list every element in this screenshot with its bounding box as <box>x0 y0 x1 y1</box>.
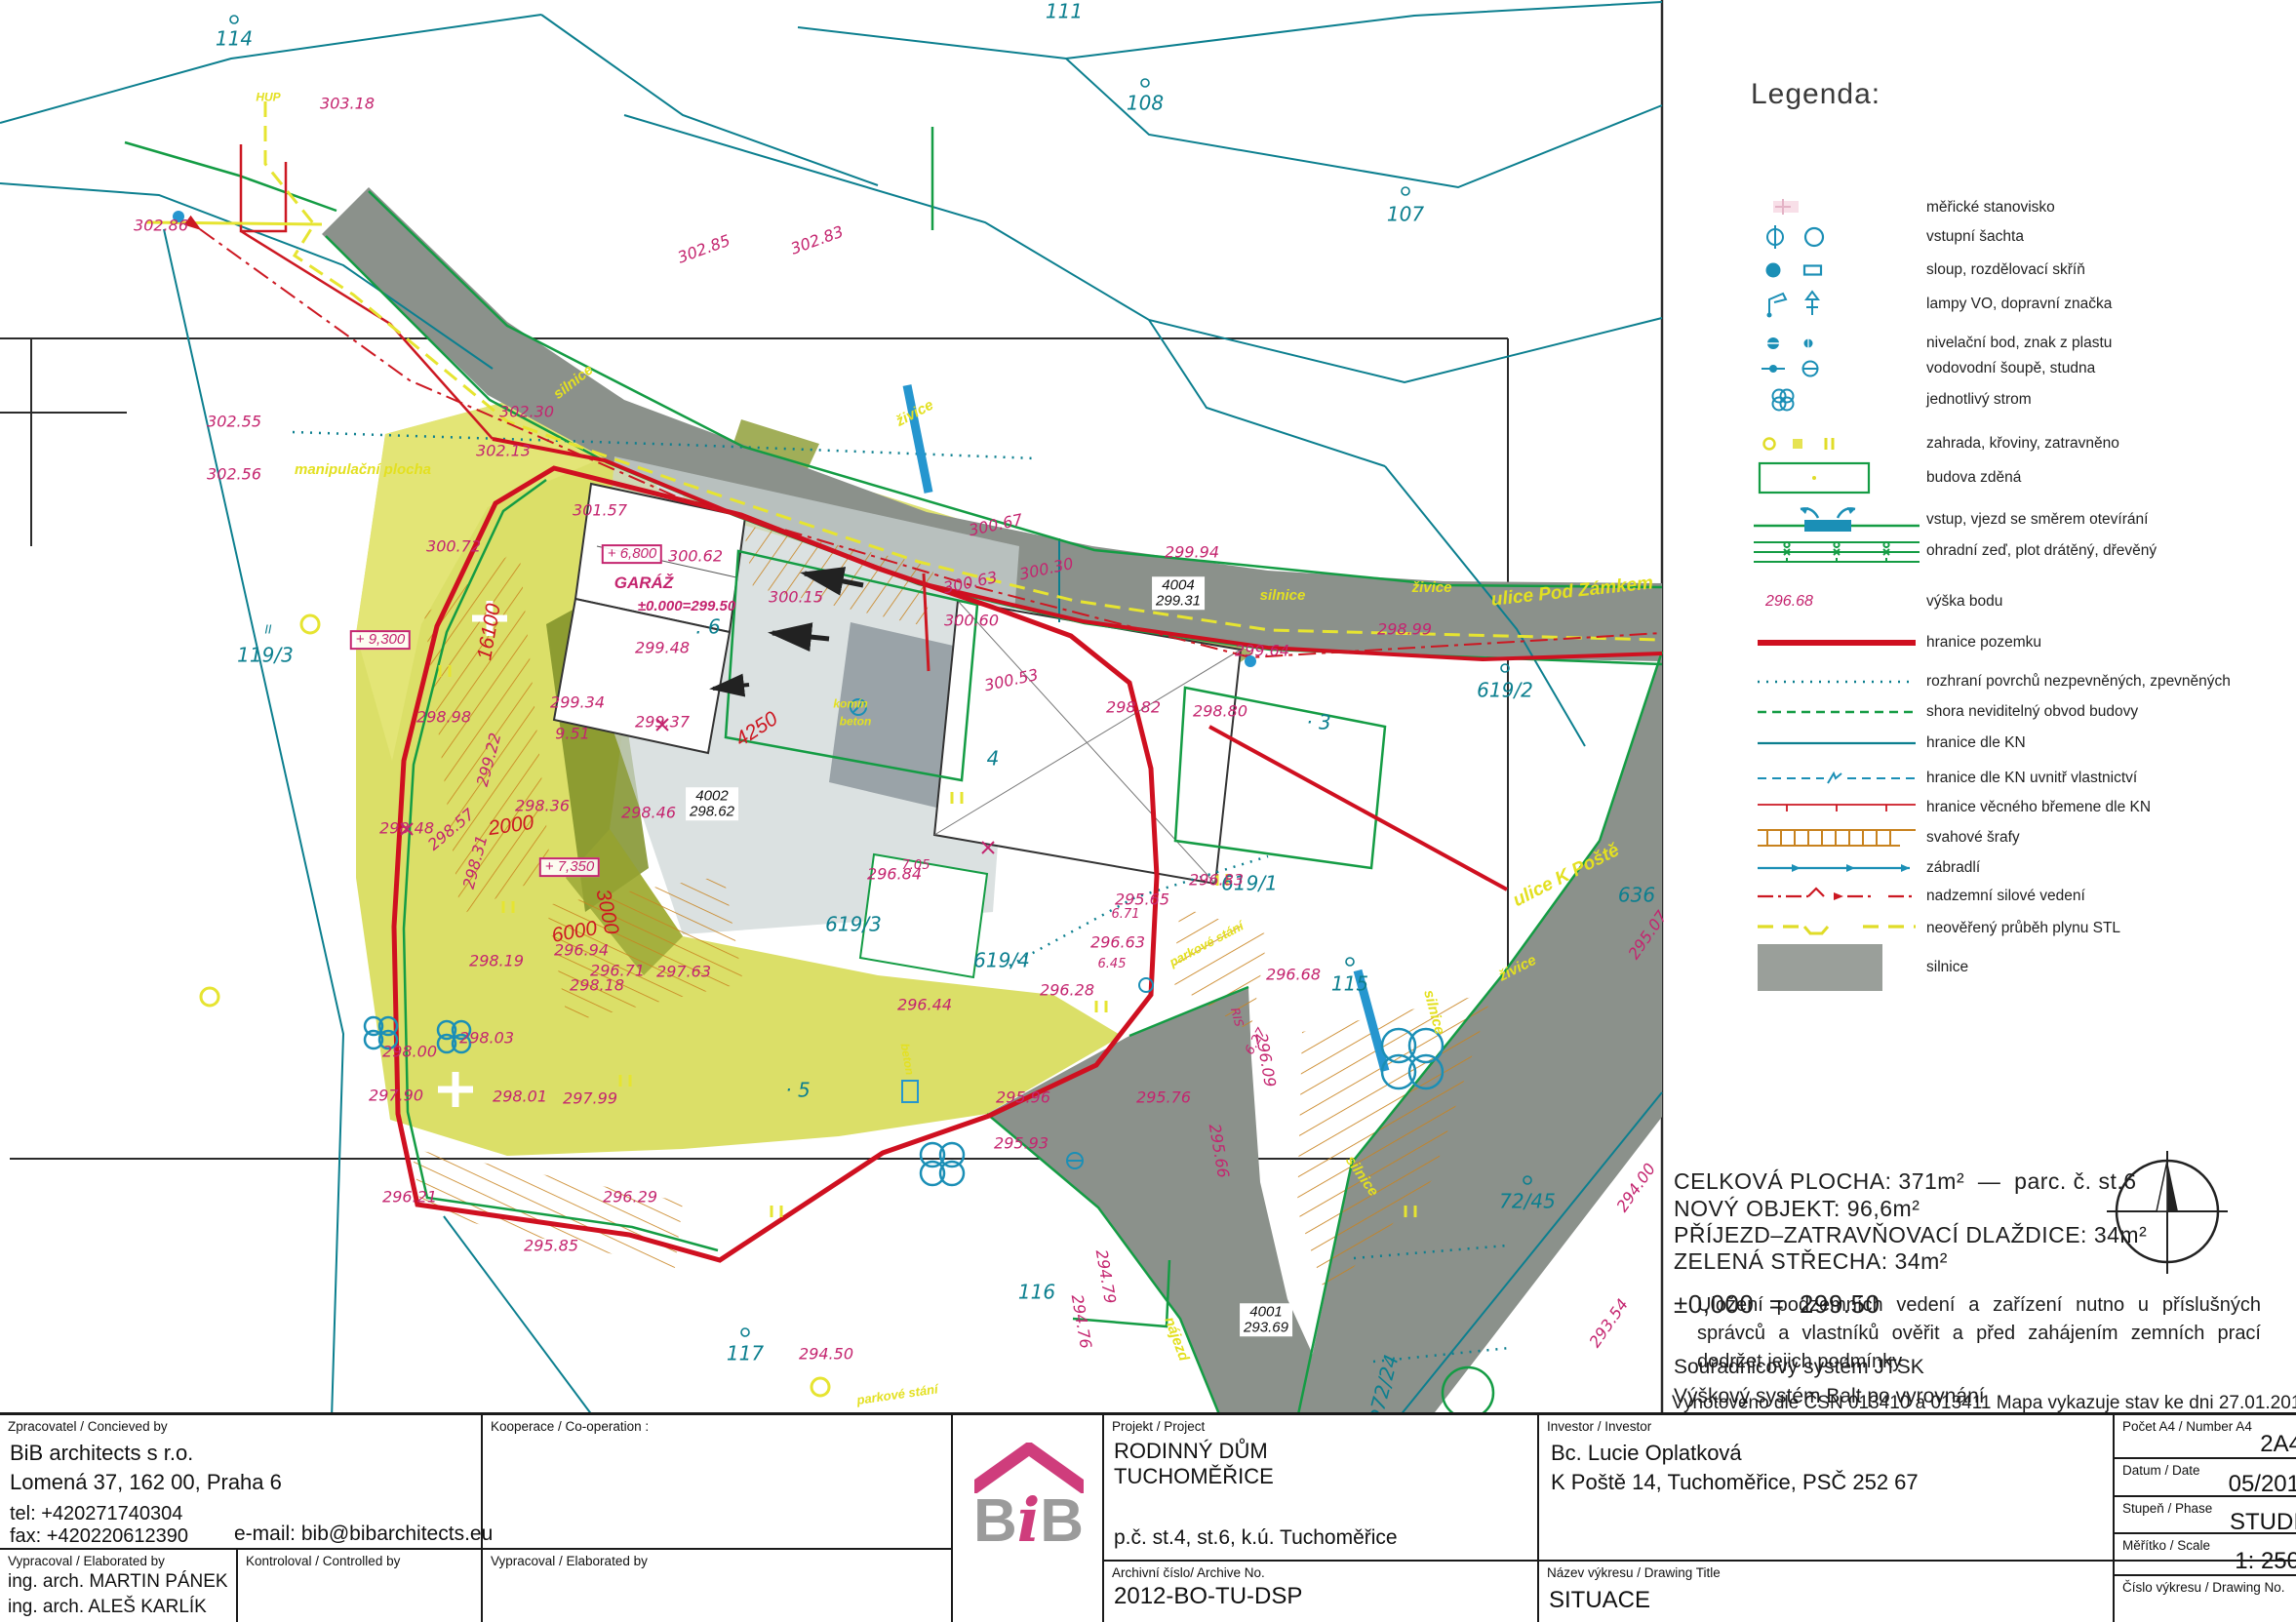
legend-item-label: sloup, rozdělovací skříň <box>1926 261 2085 279</box>
legend-item-pozemek: hranice pozemku <box>1668 628 2292 657</box>
archiv-label: Archivní číslo/ Archive No. <box>1112 1565 1265 1580</box>
legend-item-srafy: svahové šrafy <box>1668 823 2292 852</box>
legend-item-soupe: vodovodní šoupě, studna <box>1668 354 2292 383</box>
rozhrani-legend-icon <box>1754 667 1920 696</box>
nazev-label: Název výkresu / Drawing Title <box>1547 1565 1721 1580</box>
projekt-parcel: p.č. st.4, st.6, k.ú. Tuchoměřice <box>1114 1526 1398 1550</box>
kooperace-label: Kooperace / Co-operation : <box>491 1419 649 1434</box>
legend-item-label: zábradlí <box>1926 859 1980 877</box>
legend-item-kn_uvnitr: hranice dle KN uvnitř vlastnictví <box>1668 764 2292 793</box>
sachta-legend-icon <box>1754 222 1920 252</box>
cell-kooperace: Kooperace / Co-operation : <box>481 1415 951 1550</box>
legend-item-label: ohradní zeď, plot drátěný, dřevěný <box>1926 542 2157 560</box>
titleblock-divider <box>1102 1560 2296 1562</box>
legend-item-label: hranice věcného břemene dle KN <box>1926 799 2151 816</box>
cislo-label: Číslo výkresu / Drawing No. <box>2122 1580 2285 1595</box>
legend-item-label: hranice dle KN uvnitř vlastnictví <box>1926 770 2137 787</box>
stanovisko-legend-icon <box>1754 193 1920 222</box>
meritko-value: 1: 250 <box>2235 1548 2296 1575</box>
legend-item-label: silnice <box>1926 959 1968 976</box>
ohradni-legend-icon <box>1754 536 1920 566</box>
legend-item-vecne: hranice věcného břemene dle KN <box>1668 793 2292 822</box>
cell-cislo: Číslo výkresu / Drawing No. <box>2113 1574 2296 1622</box>
legend-item-label: hranice dle KN <box>1926 734 2026 752</box>
legend-item-label: nivelační bod, znak z plastu <box>1926 335 2112 352</box>
author-1: ing. arch. MARTIN PÁNEK <box>8 1571 228 1593</box>
shora-legend-icon <box>1754 697 1920 727</box>
legend-item-kn: hranice dle KN <box>1668 729 2292 758</box>
nadzemni-legend-icon <box>1754 882 1920 911</box>
vstup-legend-icon <box>1754 504 1920 535</box>
cell-logo: BiB <box>951 1415 1102 1622</box>
lampy-legend-icon <box>1754 290 1920 319</box>
srafy-legend-icon <box>1754 823 1920 852</box>
legend-item-zabradli: zábradlí <box>1668 853 2292 883</box>
company-name: BiB architects s r.o. <box>10 1441 193 1466</box>
soupe-legend-icon <box>1754 354 1920 383</box>
investor-name: Bc. Lucie Oplatková <box>1551 1441 1742 1466</box>
legend-item-label: budova zděná <box>1926 469 2021 487</box>
author-2: ing. arch. ALEŠ KARLÍK <box>8 1597 207 1618</box>
pocet-value: 2A4 <box>2260 1431 2296 1458</box>
cell-archiv: Archivní číslo/ Archive No. 2012-BO-TU-D… <box>1102 1562 1537 1622</box>
plyn-legend-icon <box>1754 914 1920 943</box>
vypracoval-label: Vypracoval / Elaborated by <box>8 1554 165 1568</box>
legend-item-ohradni: ohradní zeď, plot drátěný, dřevěný <box>1668 536 2292 566</box>
pozemek-legend-icon <box>1754 628 1920 657</box>
titleblock-divider <box>0 1548 951 1550</box>
legend-item-plyn: neověřený průběh plynu STL <box>1668 914 2292 943</box>
legend-item-zahrada: zahrada, křoviny, zatravněno <box>1668 429 2292 458</box>
vypracoval2-label: Vypracoval / Elaborated by <box>491 1554 648 1568</box>
legend-item-silnice: silnice <box>1668 941 2292 994</box>
cell-stupen: Stupeň / Phase STUDI <box>2113 1495 2296 1532</box>
meritko-label: Měřítko / Scale <box>2122 1538 2210 1553</box>
cell-pocet: Počet A4 / Number A4 2A4 <box>2113 1415 2296 1457</box>
csn-footer-line: Vyhotoveno dle ČSN 013410 a 013411 Mapa … <box>1672 1393 2296 1414</box>
investor-label: Investor / Investor <box>1547 1419 1651 1434</box>
company-tel: tel: +420271740304 <box>10 1503 182 1525</box>
cell-vypracoval-2: Vypracoval / Elaborated by <box>481 1550 951 1622</box>
legend-item-label: vodovodní šoupě, studna <box>1926 360 2095 377</box>
legend-item-lampy: lampy VO, dopravní značka <box>1668 290 2292 319</box>
legend-item-strom: jednotlivý strom <box>1668 385 2292 415</box>
cell-projekt: Projekt / Project RODINNÝ DŮM TUCHOMĚŘIC… <box>1102 1415 1537 1562</box>
legend-item-label: shora neviditelný obvod budovy <box>1926 703 2138 721</box>
legend-item-vstup: vstup, vjezd se směrem otevírání <box>1668 504 2292 535</box>
cell-vypracoval: Vypracoval / Elaborated by ing. arch. MA… <box>0 1550 236 1622</box>
kn-legend-icon <box>1754 729 1920 758</box>
drawing-title: SITUACE <box>1549 1587 1650 1614</box>
cell-kontroloval: Kontroloval / Controlled by <box>236 1550 481 1622</box>
legend-panel: Legenda: měřické stanoviskovstupní šacht… <box>1668 0 2296 1157</box>
company-fax: fax: +420220612390 <box>10 1525 188 1548</box>
zabradli-legend-icon <box>1754 853 1920 883</box>
legend-item-label: rozhraní povrchů nezpevněných, zpevněnýc… <box>1926 673 2231 691</box>
zpracovatel-label: Zpracovatel / Concieved by <box>8 1419 168 1434</box>
bib-logo: BiB <box>953 1437 1104 1549</box>
legend-item-label: měřické stanovisko <box>1926 199 2055 217</box>
legend-item-nadzemni: nadzemní silové vedení <box>1668 882 2292 911</box>
site-plan-page: 114111108107119/3II619/2619/1619/3619/4·… <box>0 0 2296 1622</box>
legend-item-label: hranice pozemku <box>1926 634 2041 652</box>
strom-legend-icon <box>1754 385 1920 415</box>
projekt-name-2: TUCHOMĚŘICE <box>1114 1464 1274 1489</box>
bib-logo-word: BiB <box>953 1493 1104 1549</box>
vecne-legend-icon <box>1754 793 1920 822</box>
legend-item-label: vstupní šachta <box>1926 228 2024 246</box>
projekt-label: Projekt / Project <box>1112 1419 1205 1434</box>
legend-item-stanovisko: měřické stanovisko <box>1668 193 2292 222</box>
north-compass-icon <box>2099 1147 2236 1284</box>
cell-zpracovatel: Zpracovatel / Concieved by BiB architect… <box>0 1415 481 1550</box>
legend-item-label: neověřený průběh plynu STL <box>1926 920 2120 937</box>
legend-item-label: vstup, vjezd se směrem otevírání <box>1926 511 2148 529</box>
company-address: Lomená 37, 162 00, Praha 6 <box>10 1470 282 1495</box>
legend-title: Legenda: <box>1751 78 1880 111</box>
cell-investor: Investor / Investor Bc. Lucie Oplatková … <box>1537 1415 2113 1562</box>
legend-item-shora: shora neviditelný obvod budovy <box>1668 697 2292 727</box>
pocet-label: Počet A4 / Number A4 <box>2122 1419 2252 1434</box>
kn_uvnitr-legend-icon <box>1754 764 1920 793</box>
datum-value: 05/201 <box>2229 1471 2296 1498</box>
legend-symbol-text: 296.68 <box>1765 593 1813 611</box>
silnice-legend-icon <box>1754 941 1920 994</box>
driveway-line: PŘÍJEZD–ZATRAVŇOVACÍ DLAŽDICE: 34m² <box>1674 1222 2147 1248</box>
sloup-legend-icon <box>1754 256 1920 285</box>
stupen-label: Stupeň / Phase <box>2122 1501 2212 1516</box>
legend-item-sloup: sloup, rozdělovací skříň <box>1668 256 2292 285</box>
legend-item-label: zahrada, křoviny, zatravněno <box>1926 435 2119 453</box>
green-roof-line: ZELENÁ STŘECHA: 34m² <box>1674 1248 1948 1275</box>
legend-item-label: lampy VO, dopravní značka <box>1926 296 2112 313</box>
legend-item-label: jednotlivý strom <box>1926 391 2032 409</box>
legend-item-budova: budova zděná <box>1668 460 2292 495</box>
projekt-name-1: RODINNÝ DŮM <box>1114 1439 1268 1464</box>
legend-item-vyska: 296.68výška bodu <box>1668 587 2292 616</box>
company-email: e-mail: bib@bibarchitects.eu <box>234 1523 493 1546</box>
legend-item-label: nadzemní silové vedení <box>1926 888 2085 905</box>
cell-meritko: Měřítko / Scale 1: 250 <box>2113 1532 2296 1574</box>
cell-nazev: Název výkresu / Drawing Title SITUACE <box>1537 1562 2113 1622</box>
investor-address: K Poště 14, Tuchoměřice, PSČ 252 67 <box>1551 1470 1919 1495</box>
cell-datum: Datum / Date 05/201 <box>2113 1457 2296 1495</box>
kontroloval-label: Kontroloval / Controlled by <box>246 1554 400 1568</box>
underground-note: Uložení podzemních vedení a zařízení nut… <box>1697 1291 2261 1376</box>
title-block: Zpracovatel / Concieved by BiB architect… <box>0 1412 2296 1622</box>
new-object-line: NOVÝ OBJEKT: 96,6m² <box>1674 1196 1920 1222</box>
legend-item-label: svahové šrafy <box>1926 829 2020 847</box>
datum-label: Datum / Date <box>2122 1463 2200 1478</box>
legend-item-rozhrani: rozhraní povrchů nezpevněných, zpevněnýc… <box>1668 667 2292 696</box>
legend-item-sachta: vstupní šachta <box>1668 222 2292 252</box>
legend-item-label: výška bodu <box>1926 593 2002 611</box>
total-area-line: CELKOVÁ PLOCHA: 371m² — parc. č. st.6 <box>1674 1168 2137 1195</box>
zahrada-legend-icon <box>1754 429 1920 458</box>
budova-legend-icon <box>1754 460 1920 495</box>
archiv-no: 2012-BO-TU-DSP <box>1114 1583 1302 1610</box>
